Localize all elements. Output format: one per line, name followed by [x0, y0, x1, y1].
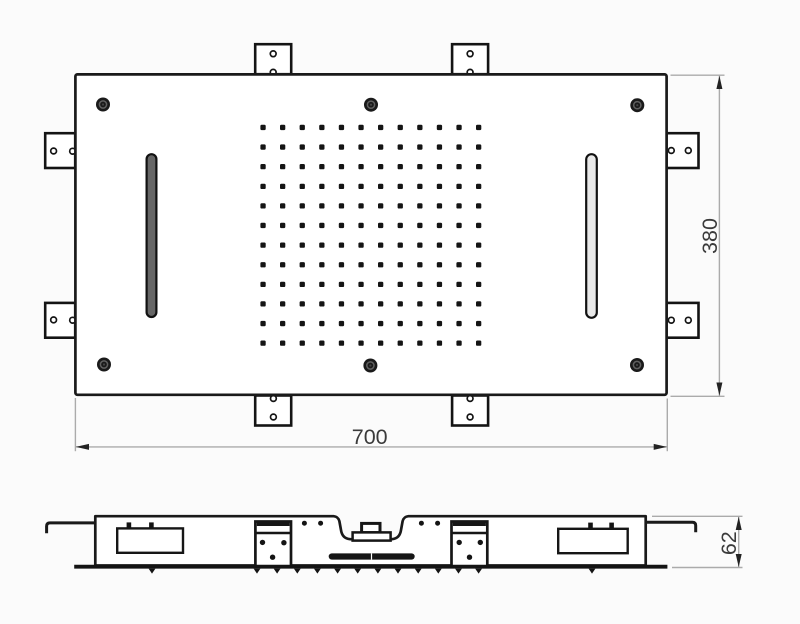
svg-text:700: 700: [352, 425, 388, 449]
svg-text:380: 380: [698, 218, 722, 254]
svg-text:62: 62: [717, 531, 741, 555]
